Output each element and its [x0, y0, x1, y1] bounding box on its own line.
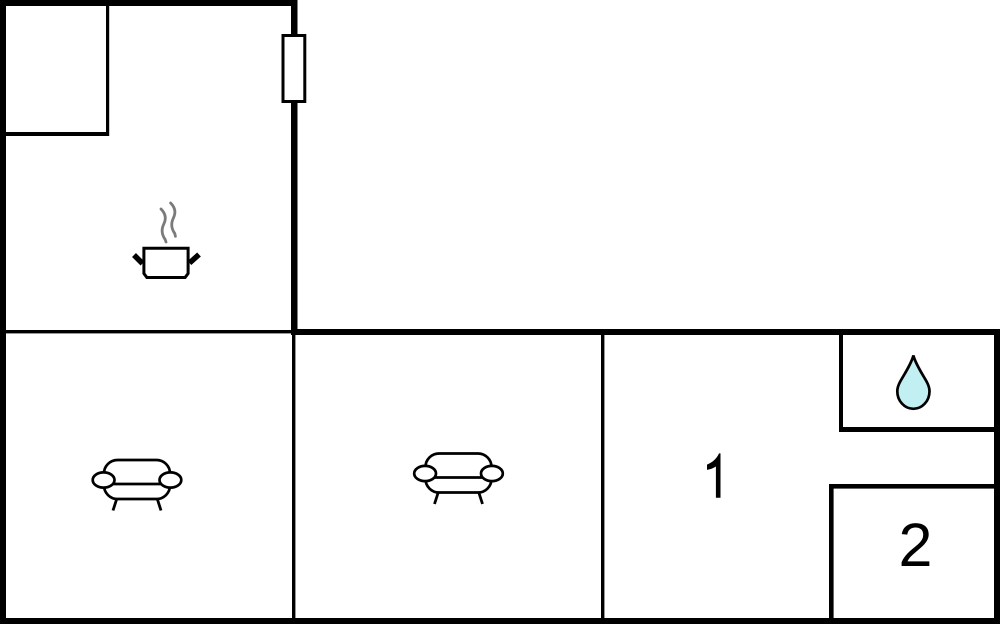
svg-text:2: 2	[899, 511, 933, 579]
